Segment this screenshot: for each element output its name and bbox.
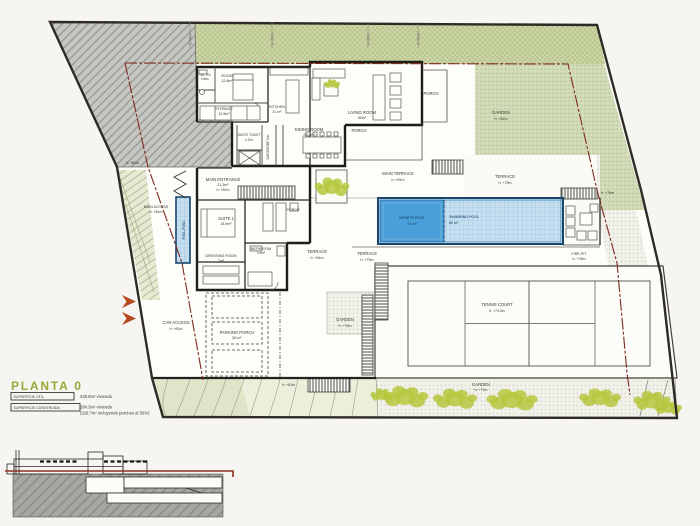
wardrobe-row [203, 276, 239, 284]
label-car-access: CAR ACCESS [163, 320, 190, 325]
label-terrace-79: TERRACE [495, 174, 515, 179]
mark-level-slope: h: +81m [282, 383, 295, 387]
mark-tick-3: h: +81m [367, 33, 371, 45]
label-dressing-area: 7m² [218, 259, 225, 263]
label-car-access-level: h: +81m [169, 327, 182, 331]
wardrobe-row [203, 266, 239, 274]
label-infinite-pool-area: 21 m² [407, 222, 417, 226]
tennis-court [375, 266, 677, 378]
label-guest-toilet-area: 4.7m² [245, 138, 253, 142]
label-storage: STORAGE [215, 107, 233, 111]
label-terrace-79b: TERRACE [357, 251, 377, 256]
mark-tick-2: h: +81m [271, 33, 275, 45]
label-living-area: 50m² [358, 116, 367, 120]
label-garden-top-level: h: +81m [494, 117, 507, 121]
pool [378, 198, 563, 244]
label-wardrobe: WARDROBE 5m² [266, 134, 270, 159]
label-suite: SUITE 1 [218, 216, 234, 221]
infinite-pool [380, 200, 444, 242]
stairs-slope [308, 378, 350, 392]
label-garden-top: GARDEN [492, 110, 510, 115]
label-gu-toilet-area: 4.8m² [201, 77, 209, 81]
legend-built-value: 284.3m² vivienda [80, 405, 113, 410]
label-suite-area: 18.9m² [220, 222, 232, 226]
label-porch-suite: PORCH [287, 208, 300, 212]
label-swimming-pool: SWIMMING POOL [449, 215, 479, 219]
label-garden-bottom: GARDEN [472, 382, 490, 387]
label-dining: DINING ROOM [295, 127, 324, 132]
lounger [263, 203, 273, 231]
label-room-area: 12.8m² [221, 79, 233, 83]
label-terrace-79-level: h: +79m [498, 181, 511, 185]
floor-plan-page: GU.TOI 4.8m² ROOM 12.8m² STORAGE 12.5m² … [0, 0, 700, 526]
mark-level-driveway: h: +81m [126, 161, 139, 165]
label-main-entrance-level: h: +81m [216, 188, 229, 192]
label-kitchen-area: 21 m² [272, 110, 282, 114]
label-storage-area: 12.5m² [218, 112, 230, 116]
lounger [276, 203, 286, 231]
mark-tick-1: h: +81m [189, 33, 193, 45]
label-porch-living-south: PORCH [351, 128, 366, 133]
label-main-entrance: MAIN ENTRANCE [206, 177, 241, 182]
label-parking: PARKING PORCH [220, 330, 255, 335]
label-porch-living-east: PORCH [423, 91, 438, 96]
garden-top-band [195, 22, 605, 64]
page-title: PLANTA 0 [11, 379, 83, 393]
title-block: PLANTA 0 SUPERFICIE ÚTIL. 228.8m² vivien… [11, 379, 150, 416]
label-terrace-79b-level: h: +79m [360, 258, 373, 262]
label-swimming-pool-area: 80 m² [449, 221, 459, 225]
label-fire-pit-level: h: +78m [572, 257, 585, 261]
stairs-tennis-2 [362, 295, 373, 375]
label-tennis: TENNIS COURT [481, 302, 513, 307]
label-room: ROOM [221, 74, 232, 78]
mark-level-stairs: h: +79m [601, 191, 614, 195]
label-garden-mid: GARDEN [336, 317, 354, 322]
access-arrow-icon [122, 295, 136, 325]
label-parking-area: 50 m² [232, 336, 242, 340]
legend-built-note: (329.7m² incluyendo porches al 50%) [80, 411, 150, 416]
label-terrace-81: TERRACE [307, 249, 327, 254]
label-garden-bottom-level: h: +73m [474, 388, 487, 392]
kitchen-counter [270, 68, 308, 75]
sofa [313, 69, 345, 78]
label-kitchen: KITCHEN [269, 105, 285, 109]
stairs-terrace [432, 160, 463, 174]
label-bathroom-area: 14m² [257, 251, 266, 255]
label-garden-mid-level: h: +76m [338, 324, 351, 328]
mark-tick-4: h: +81m [417, 33, 421, 45]
legend-useful-value: 228.8m² vivienda [80, 394, 113, 399]
label-dressing: DRESSING ROOM [206, 254, 237, 258]
floor-plan-canvas: GU.TOI 4.8m² ROOM 12.8m² STORAGE 12.5m² … [0, 0, 700, 526]
legend-useful-label: SUPERFICIE ÚTIL. [14, 394, 45, 399]
label-main-terrace-level: h: +81m [391, 178, 404, 182]
label-fire-pit: FIRE-PIT [572, 252, 588, 256]
label-living: LIVING ROOM [348, 110, 376, 115]
label-terrace-81-level: h: +81m [310, 256, 323, 260]
label-tennis-level: h: +74.0m [489, 309, 505, 313]
stairs-entrance [238, 186, 295, 199]
legend-built-label: SUPERFICIE CONSTRUIDA [14, 406, 61, 410]
bed [233, 74, 253, 100]
label-dining-area: 29.2m² [303, 133, 315, 137]
section-elevation [5, 450, 233, 517]
toilet-icon [200, 90, 205, 95]
wc [277, 246, 285, 256]
kitchen-island [286, 80, 299, 113]
label-main-access: MAIN ACCESS [144, 205, 169, 209]
swimming-pool [444, 200, 561, 242]
label-guest-toilet: GUEST TOILET [238, 133, 261, 137]
label-pool-pond: POOL-POND [182, 220, 186, 240]
stairs-firepit [561, 188, 597, 199]
label-main-entrance-area: 21.3m² [217, 183, 229, 187]
dining-table [303, 137, 341, 153]
stairs-tennis-1 [375, 263, 388, 320]
bathtub [248, 272, 272, 286]
label-infinite-pool: INFINITE POOL [399, 216, 425, 220]
label-main-terrace: MAIN TERRACE [382, 171, 414, 176]
label-main-access-level: h: +81m [149, 210, 162, 214]
